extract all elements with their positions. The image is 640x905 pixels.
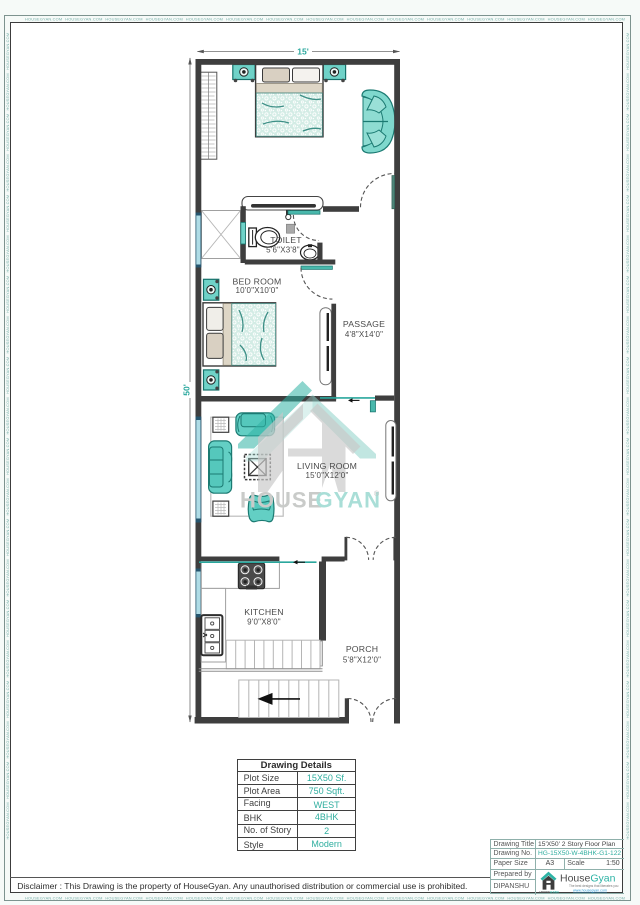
svg-text:HOUSEGYAN.COM: HOUSEGYAN.COM: [5, 438, 10, 475]
svg-text:BED ROOM: BED ROOM: [233, 277, 282, 287]
svg-text:HOUSEGYAN.COM: HOUSEGYAN.COM: [5, 802, 10, 839]
svg-text:15': 15': [297, 47, 308, 57]
svg-text:HOUSEGYAN.COM: HOUSEGYAN.COM: [65, 896, 102, 901]
svg-text:HOUSEGYAN.COM: HOUSEGYAN.COM: [625, 762, 630, 799]
svg-text:GYAN: GYAN: [316, 488, 382, 513]
svg-text:9'0"X8'0": 9'0"X8'0": [247, 618, 281, 627]
svg-text:www.housegyan.com: www.housegyan.com: [573, 888, 607, 892]
svg-text:HOUSEGYAN.COM: HOUSEGYAN.COM: [65, 16, 102, 21]
svg-text:HOUSEGYAN.COM: HOUSEGYAN.COM: [625, 276, 630, 313]
svg-text:HOUSEGYAN.COM: HOUSEGYAN.COM: [625, 33, 630, 70]
svg-text:HOUSEGYAN.COM: HOUSEGYAN.COM: [306, 16, 343, 21]
svg-text:HOUSEGYAN.COM: HOUSEGYAN.COM: [5, 681, 10, 718]
svg-text:HOUSEGYAN.COM: HOUSEGYAN.COM: [625, 397, 630, 434]
svg-text:HOUSEGYAN.COM: HOUSEGYAN.COM: [5, 357, 10, 394]
svg-text:HOUSEGYAN.COM: HOUSEGYAN.COM: [625, 357, 630, 394]
svg-text:HOUSEGYAN.COM: HOUSEGYAN.COM: [387, 16, 424, 21]
svg-text:4'8"X14'0": 4'8"X14'0": [345, 330, 383, 339]
svg-text:HOUSEGYAN.COM: HOUSEGYAN.COM: [625, 316, 630, 353]
svg-text:LIVING ROOM: LIVING ROOM: [297, 461, 357, 471]
svg-text:HOUSEGYAN.COM: HOUSEGYAN.COM: [25, 896, 62, 901]
svg-text:HOUSEGYAN.COM: HOUSEGYAN.COM: [5, 276, 10, 313]
svg-text:HOUSEGYAN.COM: HOUSEGYAN.COM: [625, 438, 630, 475]
svg-text:HOUSEGYAN.COM: HOUSEGYAN.COM: [105, 16, 142, 21]
svg-text:HOUSEGYAN.COM: HOUSEGYAN.COM: [625, 73, 630, 110]
svg-text:HOUSEGYAN.COM: HOUSEGYAN.COM: [146, 896, 183, 901]
svg-text:50': 50': [182, 384, 192, 395]
svg-text:HOUSEGYAN.COM: HOUSEGYAN.COM: [588, 16, 625, 21]
svg-text:10'0"X10'0": 10'0"X10'0": [236, 286, 279, 295]
svg-text:KITCHEN: KITCHEN: [244, 607, 284, 617]
svg-text:HOUSEGYAN.COM: HOUSEGYAN.COM: [5, 762, 10, 799]
svg-text:HOUSEGYAN.COM: HOUSEGYAN.COM: [387, 896, 424, 901]
svg-text:HOUSEGYAN.COM: HOUSEGYAN.COM: [5, 559, 10, 596]
svg-text:PASSAGE: PASSAGE: [343, 319, 385, 329]
svg-text:HOUSEGYAN.COM: HOUSEGYAN.COM: [5, 195, 10, 232]
svg-text:HOUSEGYAN.COM: HOUSEGYAN.COM: [226, 896, 263, 901]
svg-text:5'8"X12'0": 5'8"X12'0": [343, 656, 381, 665]
svg-text:HOUSEGYAN.COM: HOUSEGYAN.COM: [467, 896, 504, 901]
svg-text:HOUSEGYAN.COM: HOUSEGYAN.COM: [146, 16, 183, 21]
svg-text:5'6"X3'8": 5'6"X3'8": [266, 246, 300, 255]
svg-text:HOUSEGYAN.COM: HOUSEGYAN.COM: [186, 896, 223, 901]
svg-text:HOUSEGYAN.COM: HOUSEGYAN.COM: [25, 16, 62, 21]
svg-text:HOUSEGYAN.COM: HOUSEGYAN.COM: [625, 478, 630, 515]
svg-text:The best designs that liberate: The best designs that liberates you: [569, 884, 619, 888]
svg-text:HOUSEGYAN.COM: HOUSEGYAN.COM: [266, 896, 303, 901]
svg-text:HOUSEGYAN.COM: HOUSEGYAN.COM: [5, 73, 10, 110]
svg-text:HOUSEGYAN.COM: HOUSEGYAN.COM: [5, 721, 10, 758]
svg-text:HOUSEGYAN.COM: HOUSEGYAN.COM: [266, 16, 303, 21]
svg-text:HOUSEGYAN.COM: HOUSEGYAN.COM: [548, 16, 585, 21]
svg-text:HOUSEGYAN.COM: HOUSEGYAN.COM: [625, 600, 630, 637]
svg-text:HOUSEGYAN.COM: HOUSEGYAN.COM: [625, 802, 630, 839]
svg-text:HOUSEGYAN.COM: HOUSEGYAN.COM: [306, 896, 343, 901]
svg-text:HOUSEGYAN.COM: HOUSEGYAN.COM: [625, 235, 630, 272]
svg-text:15'0"X12'0": 15'0"X12'0": [306, 471, 349, 480]
svg-text:HOUSEGYAN: HOUSEGYAN: [540, 890, 559, 894]
svg-text:HOUSEGYAN.COM: HOUSEGYAN.COM: [347, 16, 384, 21]
svg-text:HOUSEGYAN.COM: HOUSEGYAN.COM: [588, 896, 625, 901]
svg-text:HOUSEGYAN.COM: HOUSEGYAN.COM: [5, 114, 10, 151]
svg-text:HOUSEGYAN.COM: HOUSEGYAN.COM: [625, 721, 630, 758]
svg-text:HOUSE: HOUSE: [240, 488, 323, 513]
svg-text:HOUSEGYAN.COM: HOUSEGYAN.COM: [625, 681, 630, 718]
svg-text:HOUSEGYAN.COM: HOUSEGYAN.COM: [5, 640, 10, 677]
svg-text:HOUSEGYAN.COM: HOUSEGYAN.COM: [5, 235, 10, 272]
svg-text:HOUSEGYAN.COM: HOUSEGYAN.COM: [467, 16, 504, 21]
svg-text:HOUSEGYAN.COM: HOUSEGYAN.COM: [186, 16, 223, 21]
svg-text:HOUSEGYAN.COM: HOUSEGYAN.COM: [625, 114, 630, 151]
svg-text:HOUSEGYAN.COM: HOUSEGYAN.COM: [226, 16, 263, 21]
svg-text:HOUSEGYAN.COM: HOUSEGYAN.COM: [625, 154, 630, 191]
svg-text:HOUSEGYAN.COM: HOUSEGYAN.COM: [5, 154, 10, 191]
svg-text:HOUSEGYAN.COM: HOUSEGYAN.COM: [5, 397, 10, 434]
svg-text:HOUSEGYAN.COM: HOUSEGYAN.COM: [548, 896, 585, 901]
svg-text:PORCH: PORCH: [346, 644, 378, 654]
svg-text:HOUSEGYAN.COM: HOUSEGYAN.COM: [5, 519, 10, 556]
svg-text:HouseGyan: HouseGyan: [560, 872, 616, 884]
svg-text:HOUSEGYAN.COM: HOUSEGYAN.COM: [625, 559, 630, 596]
svg-text:HOUSEGYAN.COM: HOUSEGYAN.COM: [5, 600, 10, 637]
svg-text:HOUSEGYAN.COM: HOUSEGYAN.COM: [507, 896, 544, 901]
svg-text:HOUSEGYAN.COM: HOUSEGYAN.COM: [5, 316, 10, 353]
svg-text:HOUSEGYAN.COM: HOUSEGYAN.COM: [105, 896, 142, 901]
svg-text:HOUSEGYAN.COM: HOUSEGYAN.COM: [427, 896, 464, 901]
svg-text:HOUSEGYAN.COM: HOUSEGYAN.COM: [625, 640, 630, 677]
svg-text:TOILET: TOILET: [270, 235, 302, 245]
svg-text:HOUSEGYAN.COM: HOUSEGYAN.COM: [5, 33, 10, 70]
svg-text:®: ®: [374, 490, 380, 498]
svg-text:HOUSEGYAN.COM: HOUSEGYAN.COM: [347, 896, 384, 901]
svg-text:HOUSEGYAN.COM: HOUSEGYAN.COM: [507, 16, 544, 21]
svg-text:HOUSEGYAN.COM: HOUSEGYAN.COM: [5, 478, 10, 515]
svg-text:HOUSEGYAN.COM: HOUSEGYAN.COM: [427, 16, 464, 21]
svg-text:HOUSEGYAN.COM: HOUSEGYAN.COM: [625, 195, 630, 232]
svg-text:HOUSEGYAN.COM: HOUSEGYAN.COM: [625, 519, 630, 556]
